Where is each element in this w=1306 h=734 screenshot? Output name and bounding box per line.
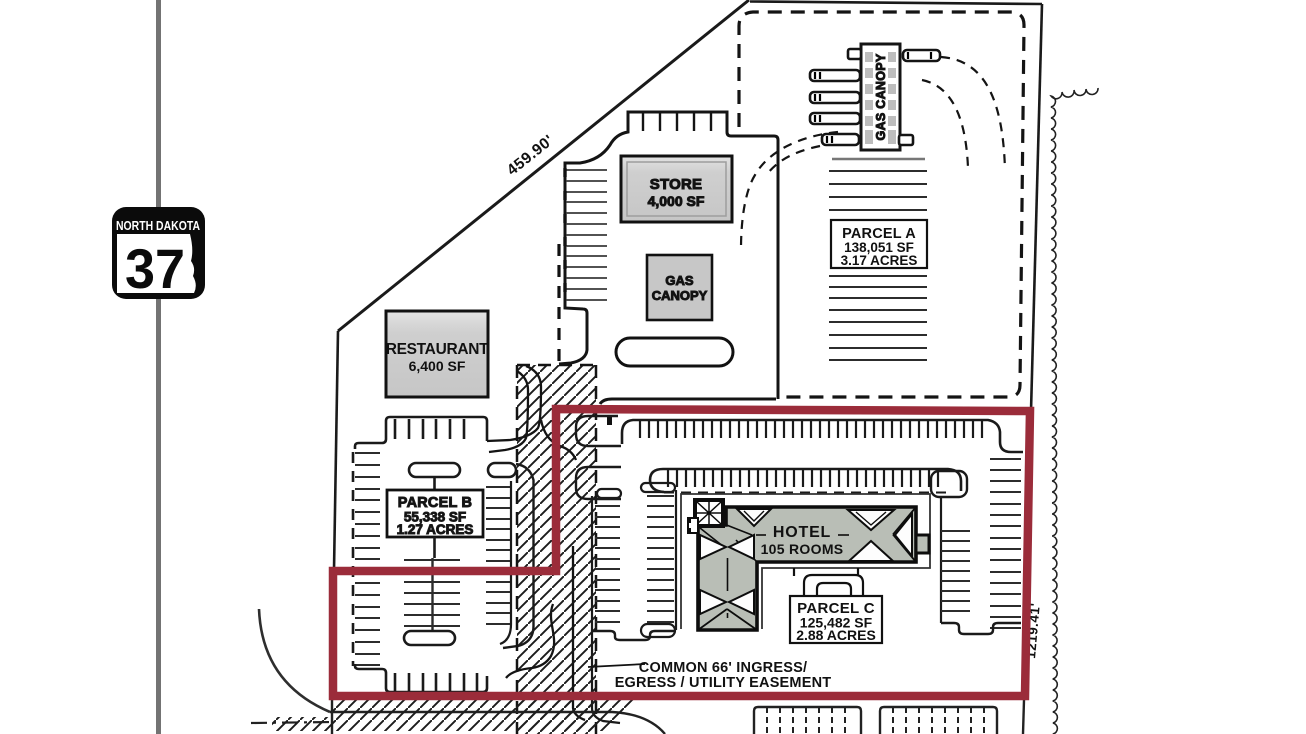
svg-text:6,400 SF: 6,400 SF	[409, 358, 466, 374]
svg-text:CANOPY: CANOPY	[652, 288, 708, 303]
svg-text:STORE: STORE	[650, 176, 702, 193]
svg-text:GAS: GAS	[665, 273, 694, 288]
svg-text:GAS CANOPY: GAS CANOPY	[874, 53, 888, 140]
svg-text:COMMON 66' INGRESS/: COMMON 66' INGRESS/	[639, 660, 807, 676]
svg-text:NORTH DAKOTA: NORTH DAKOTA	[116, 218, 200, 233]
svg-text:HOTEL: HOTEL	[773, 524, 831, 541]
svg-text:37: 37	[125, 237, 185, 300]
svg-text:1.27 ACRES: 1.27 ACRES	[397, 522, 474, 537]
svg-text:3.17 ACRES: 3.17 ACRES	[841, 253, 918, 268]
svg-text:105 ROOMS: 105 ROOMS	[761, 541, 844, 557]
svg-text:RESTAURANT: RESTAURANT	[386, 341, 489, 358]
svg-text:EGRESS / UTILITY EASEMENT: EGRESS / UTILITY EASEMENT	[615, 675, 832, 691]
svg-text:4,000 SF: 4,000 SF	[648, 193, 705, 209]
svg-text:2.88 ACRES: 2.88 ACRES	[796, 627, 876, 643]
